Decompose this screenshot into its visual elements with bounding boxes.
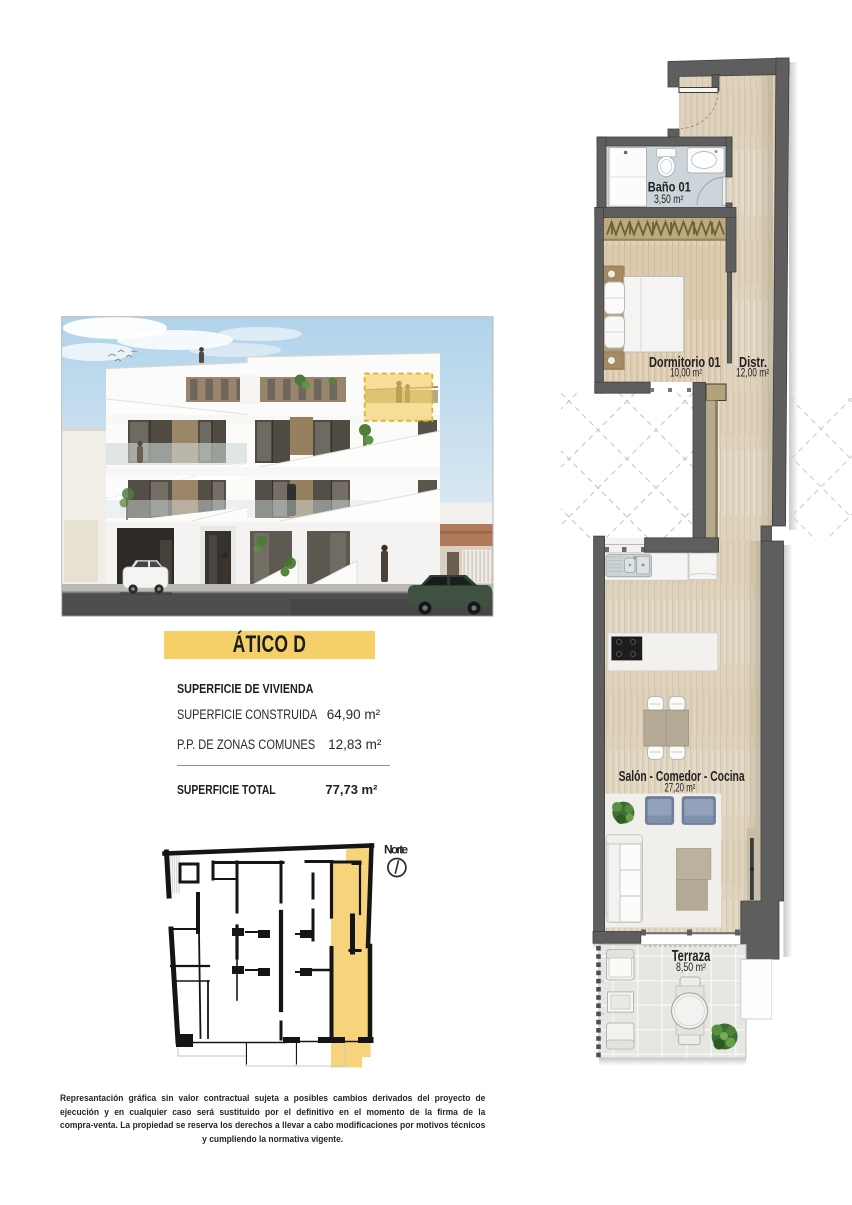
- svg-text:8,50 m²: 8,50 m²: [676, 962, 706, 974]
- svg-text:10,00 m²: 10,00 m²: [670, 368, 702, 380]
- svg-text:27,20 m²: 27,20 m²: [664, 783, 695, 795]
- svg-text:12,00 m²: 12,00 m²: [736, 368, 769, 380]
- svg-text:Norte: Norte: [384, 843, 408, 857]
- svg-text:3,50 m²: 3,50 m²: [654, 194, 684, 206]
- svg-text:Baño 01: Baño 01: [648, 179, 691, 195]
